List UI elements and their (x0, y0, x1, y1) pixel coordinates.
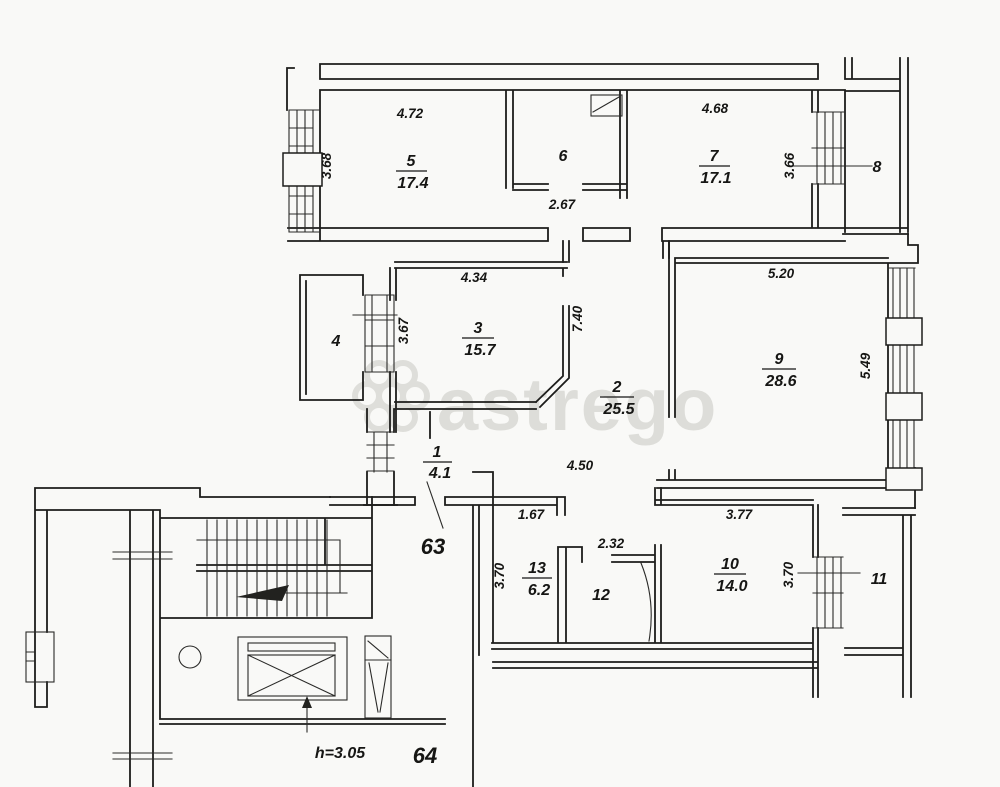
wall-pier (886, 468, 922, 490)
window-room7-room8-icon (812, 112, 845, 184)
floor-plan-canvas: astrego (0, 0, 1000, 787)
watermark: astrego (355, 363, 718, 446)
window-near-room1-icon (367, 432, 394, 472)
dim-room9-depth: 5.49 (858, 352, 873, 379)
stairwell-windows-icon (113, 552, 172, 759)
room-10-number: 10 (721, 556, 739, 573)
room-10-area: 14.0 (716, 578, 747, 595)
dim-wall-offset: 1.67 (518, 507, 546, 522)
room-5-number: 5 (407, 153, 417, 170)
duct-box (26, 632, 54, 682)
room-1-area: 4.1 (428, 465, 451, 482)
window-room10-room11-icon (813, 557, 843, 628)
dim-room9-width: 5.20 (768, 266, 795, 281)
dim-room7-width: 4.68 (701, 101, 729, 116)
walls-lower-section (330, 472, 915, 787)
apartment-63-label: 63 (421, 534, 445, 559)
service-shaft (365, 636, 391, 718)
service-shaft-detail (365, 641, 391, 712)
room-3-number: 3 (474, 320, 483, 337)
room-8-number: 8 (873, 159, 882, 176)
room-7-area: 17.1 (700, 170, 731, 187)
windows-room9-icon (888, 268, 915, 468)
dim-hall-width: 4.50 (566, 458, 594, 473)
stair-direction-arrow-icon (236, 585, 289, 601)
walls-top-section (287, 58, 908, 262)
dim-room10-width: 3.77 (726, 507, 754, 522)
room-5-area: 17.4 (397, 175, 428, 192)
dim-room5-width: 4.72 (396, 106, 424, 121)
height-arrowhead-icon (302, 696, 312, 708)
room-6-number: 6 (559, 148, 568, 165)
dim-room6-width: 2.67 (548, 197, 577, 212)
dim-room13-depth: 3.70 (492, 562, 507, 589)
dim-room5-depth: 3.68 (319, 152, 334, 179)
room-13-area: 6.2 (528, 582, 550, 599)
apartment-64-label: 64 (413, 743, 437, 768)
dim-room10-depth: 3.70 (781, 561, 796, 588)
watermark-gear-icon (355, 363, 427, 429)
room-13-number: 13 (528, 560, 546, 577)
watermark-text: astrego (437, 363, 718, 446)
room-11-number: 11 (871, 571, 888, 588)
dim-hall-depth: 7.40 (570, 305, 585, 332)
room-3-area: 15.7 (464, 342, 496, 359)
door-leaf-room1 (427, 482, 443, 528)
wall-pier (886, 393, 922, 420)
dim-room3-depth: 3.67 (396, 316, 411, 344)
dim-room7-depth: 3.66 (782, 152, 797, 179)
wall-pier (283, 153, 322, 186)
elevator-cross-icon (248, 655, 335, 696)
elevator-shaft (238, 637, 347, 700)
room-2-area: 25.5 (602, 401, 635, 418)
floor-plan-page: astrego (0, 0, 1000, 787)
wall-pier (886, 318, 922, 345)
room-12-number: 12 (592, 587, 610, 604)
dim-room3-width: 4.34 (460, 270, 488, 285)
column-icon (179, 646, 201, 668)
stair-treads (207, 520, 327, 616)
door-leaf-room12 (641, 563, 651, 641)
room-9-number: 9 (775, 351, 784, 368)
room-4-number: 4 (331, 333, 341, 350)
room-1-number: 1 (433, 444, 442, 461)
room-9-area: 28.6 (764, 373, 796, 390)
elevator-door-strip (248, 643, 335, 651)
room-2-number: 2 (612, 379, 622, 396)
elevator-block (26, 632, 391, 732)
vent-box-detail (593, 97, 619, 112)
ceiling-height-label: h=3.05 (315, 745, 366, 762)
room-7-number: 7 (710, 148, 720, 165)
duct-box-notch (26, 652, 34, 661)
dim-room12-width: 2.32 (597, 536, 625, 551)
